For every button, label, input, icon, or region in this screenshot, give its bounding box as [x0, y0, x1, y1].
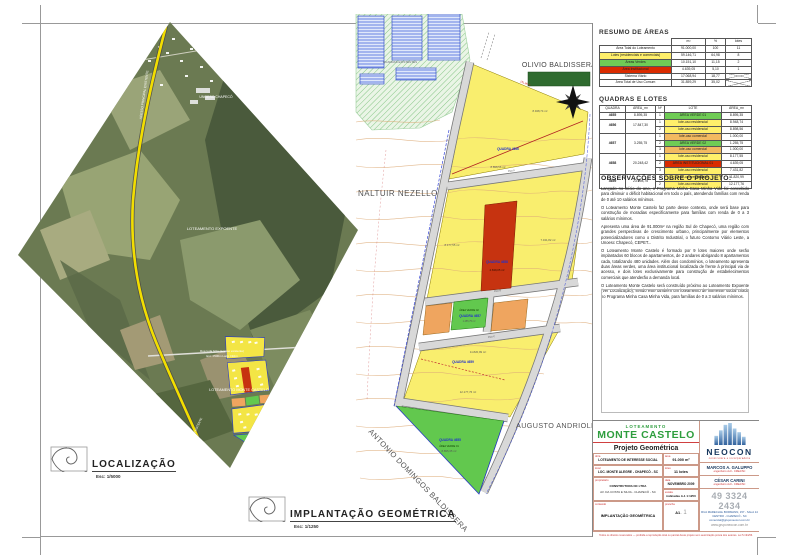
svg-text:QUADRA 4658: QUADRA 4658 — [486, 260, 508, 264]
label-access-road-1: Rua toda brita (acesso existente) — [200, 349, 244, 353]
observacoes-paragraph: Apresenta uma área de 91.000m² na região… — [601, 224, 749, 245]
label-monte-castelo-overlay: LOTEAMENTO MONTE CASTELO — [209, 388, 269, 392]
svg-text:ÁREA VERDE 02: ÁREA VERDE 02 — [459, 309, 479, 312]
table-row: Lotes (residenciais e comerciais)59.146,… — [600, 52, 752, 59]
corner-tick — [758, 537, 776, 538]
observacoes-section: OBSERVAÇÕES SOBRE O PROJETO: Lançado no … — [601, 175, 749, 302]
table-row: Área Institucional4.639,055,101 — [600, 66, 752, 73]
field-data: data NOVEMBRO 2009 — [663, 477, 699, 489]
website: www.gruponeocon.com.br — [700, 523, 759, 527]
svg-text:12.177,76 m²: 12.177,76 m² — [460, 390, 477, 394]
table-row: Área Total do Loteamento91.000,0010011 — [600, 45, 752, 52]
commercial-lot-2 — [491, 299, 528, 331]
field-local: local LOC. MONTE ALEGRE - CHAPECÓ - SC — [593, 465, 663, 477]
svg-text:11.820,99 m²: 11.820,99 m² — [470, 350, 486, 354]
title-block-fields: LOTEAMENTO MONTE CASTELO Projeto Geométr… — [593, 421, 699, 531]
table-row: Áreas Verdes10.151,1011,152 — [600, 59, 752, 66]
neocon-panel: NEOCON construtora e incorporadora MARCO… — [699, 421, 759, 531]
title-block: LOTEAMENTO MONTE CASTELO Projeto Geométr… — [593, 420, 759, 537]
engineer-2: CÉSAR CARINI engenheiro civil - CREA/SC — [700, 476, 759, 489]
svg-text:8.948,74 m²: 8.948,74 m² — [533, 109, 548, 113]
localizacao-scale: Esc: 1/5000 — [96, 474, 176, 479]
notes-box — [601, 289, 749, 413]
observacoes-paragraph: O Loteamento Monte Castelo é formado por… — [601, 248, 749, 280]
existing-quadras-zone: QUADRAS EXISTENTES — [356, 14, 470, 130]
svg-text:ÁREA VERDE 01: ÁREA VERDE 01 — [439, 445, 459, 448]
field-proprietario: proprietário CONSTRUTORA NC LTDA AV. DA … — [593, 477, 663, 501]
table-row: Sistema Viário17.068,9418,77 — [600, 73, 752, 80]
svg-text:8.898,56 m²: 8.898,56 m² — [491, 165, 506, 169]
svg-text:8.177,55 m²: 8.177,55 m² — [445, 243, 460, 247]
table-row: 46558.895,35 1ÁREA VERDE 018.895,35 — [600, 112, 752, 119]
corner-tick — [757, 537, 758, 555]
corner-tick — [758, 23, 776, 24]
plan-drawing: QUADRAS EXISTENTES — [352, 14, 598, 538]
implantacao-caption: IMPLANTAÇÃO GEOMÉTRICA Esc: 1/1250 — [248, 496, 456, 529]
satellite-map: LOTEAMENTO EXPOENTE UNOESC CHAPECÓ LOTEA… — [0, 0, 370, 480]
neocon-name: NEOCON — [700, 447, 759, 457]
table-row: 465617.847,30 1lote-uso residencial8.948… — [600, 119, 752, 126]
label-unoesc: UNOESC CHAPECÓ — [199, 94, 233, 99]
corner-tick — [757, 5, 758, 23]
table-row: 46573.255,75 1lote-uso comercial1.000,00 — [600, 133, 752, 140]
field-conteudo: conteúdo IMPLANTAÇÃO GEOMÉTRICA — [593, 501, 663, 531]
commercial-lot-1 — [423, 303, 452, 335]
drawing-sheet: LOTEAMENTO EXPOENTE UNOESC CHAPECÓ LOTEA… — [0, 0, 800, 560]
label-loteamento-expoente: LOTEAMENTO EXPOENTE — [187, 226, 238, 231]
implantacao-scale: Esc: 1/1250 — [294, 524, 456, 529]
neocon-logo-icon — [710, 423, 750, 445]
implantacao-title: IMPLANTAÇÃO GEOMÉTRICA — [290, 509, 456, 522]
email: comercial@gruponeocon.com.br — [700, 519, 759, 523]
resumo-table: m²%lotes Área Total do Loteamento91.000,… — [599, 38, 752, 87]
corner-tick — [40, 537, 41, 555]
table-row: 465820.248,42 1lote-uso residencial8.177… — [600, 154, 752, 161]
label-neighbor-west: NALTUIR NEZELLO — [358, 189, 438, 198]
label-neighbor-north: OLIVIO BALDISSERA — [522, 62, 596, 69]
spiral-icon — [50, 446, 88, 472]
observacoes-paragraph: Lançado no início do ano, o Programa Min… — [601, 186, 749, 202]
institutional-area-lot — [481, 201, 517, 291]
svg-text:4.639,05 m²: 4.639,05 m² — [490, 268, 505, 272]
label-existing-quadras: QUADRAS EXISTENTES — [383, 60, 417, 64]
svg-text:8.895,35 m²: 8.895,35 m² — [442, 449, 457, 453]
vegetation-strip — [528, 72, 590, 86]
observacoes-title: OBSERVAÇÕES SOBRE O PROJETO: — [601, 175, 749, 182]
localizacao-title: LOCALIZAÇÃO — [92, 459, 176, 472]
quadras-title: QUADRAS E LOTES — [599, 96, 667, 103]
corner-tick — [22, 537, 40, 538]
resumo-title: RESUMO DE ÁREAS — [599, 29, 669, 36]
label-neighbor-east: AUGUSTO ANDRIOLI — [516, 421, 593, 430]
svg-text:QUADRA 4655: QUADRA 4655 — [439, 438, 461, 442]
phone-number: 49 3324 2434 — [700, 489, 759, 511]
right-panel: RESUMO DE ÁREAS m²%lotes Área Total do L… — [592, 23, 758, 537]
svg-text:1.255,75 m²: 1.255,75 m² — [463, 320, 476, 323]
svg-text:QUADRA 4659: QUADRA 4659 — [452, 360, 474, 364]
field-lotes: lotes 11 lotes — [663, 465, 699, 477]
observacoes-paragraph: O Loteamento Monte Castelo faz parte des… — [601, 205, 749, 221]
field-prancha: prancha A1. 1 — [663, 501, 699, 531]
field-escala: escala indicadas A-1 1:1250 — [663, 489, 699, 501]
engineer-1: MARCOS A. GALUPPO engenheiro civil - CRE… — [700, 463, 759, 476]
svg-text:QUADRA 4657: QUADRA 4657 — [459, 314, 481, 318]
spiral-icon — [248, 496, 286, 522]
localizacao-caption: LOCALIZAÇÃO Esc: 1/5000 — [50, 446, 176, 479]
svg-text:QUADRA 4656: QUADRA 4656 — [497, 147, 519, 151]
title-block-footer: Todos os direitos reservados — proibida … — [593, 531, 759, 538]
label-access-road-2: Ext: ±500m Larg: ±10m — [206, 354, 238, 358]
field-area: área 91.000 m² — [663, 453, 699, 465]
title-block-header: LOTEAMENTO MONTE CASTELO Projeto Geométr… — [593, 421, 699, 453]
loteamento-name: MONTE CASTELO — [593, 429, 699, 443]
svg-text:7.431,82 m²: 7.431,82 m² — [541, 238, 556, 242]
field-obra: obra LOTEAMENTO DE INTERESSE SOCIAL — [593, 453, 663, 465]
table-row: Área Total de Uso Comum31.859,2935,02 — [600, 80, 752, 87]
